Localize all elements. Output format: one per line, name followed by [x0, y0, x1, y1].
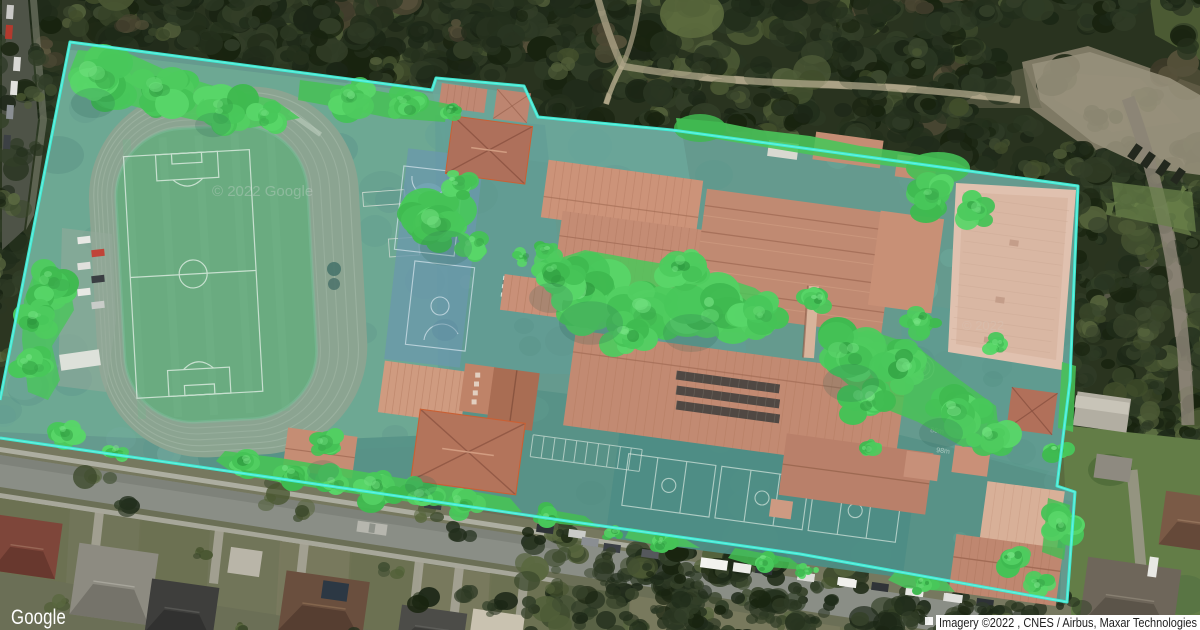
svg-text:© 2022: © 2022 — [962, 318, 1004, 333]
svg-text:Imagery ©2022 , CNES / Airbus,: Imagery ©2022 , CNES / Airbus, Maxar Tec… — [939, 616, 1197, 630]
svg-text:Google: Google — [11, 606, 66, 629]
svg-text:© 2022 Google: © 2022 Google — [212, 183, 313, 200]
